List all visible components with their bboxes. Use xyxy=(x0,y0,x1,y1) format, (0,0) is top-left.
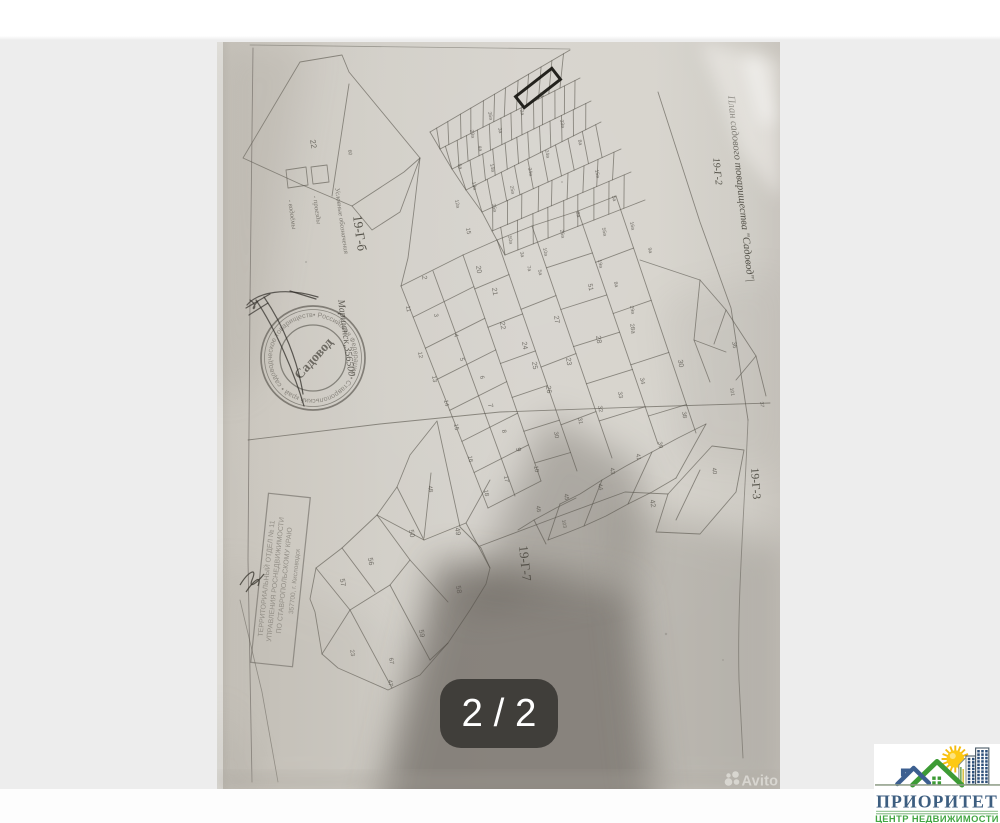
svg-text:19-Г-3: 19-Г-3 xyxy=(748,467,762,500)
svg-text:50: 50 xyxy=(407,529,415,538)
svg-text:24: 24 xyxy=(520,341,528,350)
svg-text:21: 21 xyxy=(490,287,498,296)
svg-text:23: 23 xyxy=(564,357,572,366)
svg-text:57: 57 xyxy=(338,578,346,587)
svg-text:20: 20 xyxy=(474,265,482,274)
svg-text:25: 25 xyxy=(530,361,538,370)
svg-text:27: 27 xyxy=(552,315,560,324)
svg-text:22: 22 xyxy=(498,321,506,330)
svg-text:26: 26 xyxy=(544,385,552,394)
svg-text:Avito: Avito xyxy=(742,774,779,790)
svg-text:42: 42 xyxy=(648,499,656,508)
svg-text:28: 28 xyxy=(594,335,602,344)
svg-text:ПРИОРИТЕТ: ПРИОРИТЕТ xyxy=(876,792,998,812)
svg-text:ЦЕНТР НЕДВИЖИМОСТИ: ЦЕНТР НЕДВИЖИМОСТИ xyxy=(875,814,999,823)
svg-text:56: 56 xyxy=(366,557,374,566)
svg-text:49: 49 xyxy=(453,527,461,536)
